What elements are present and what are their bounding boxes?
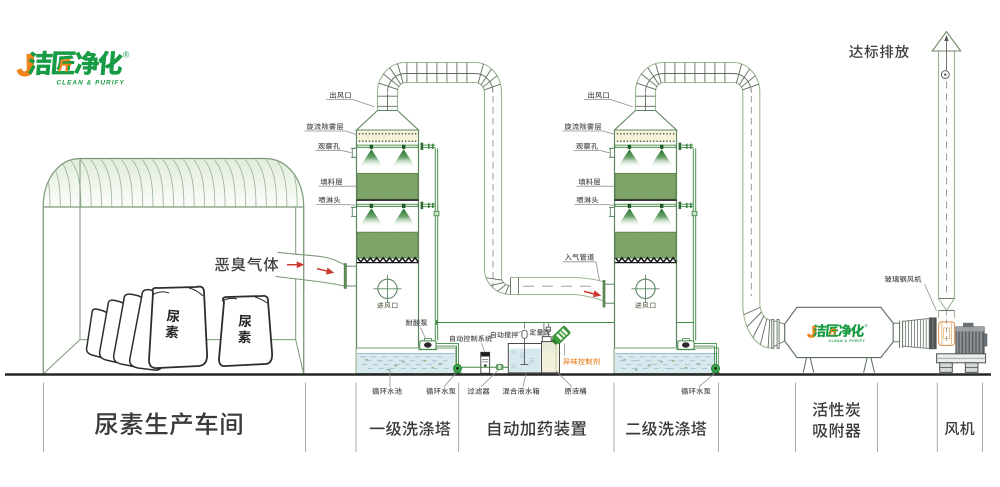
svg-text:CLEAN & PURIFY: CLEAN & PURIFY — [828, 339, 865, 343]
svg-text:CLEAN & PURIFY: CLEAN & PURIFY — [57, 79, 125, 86]
svg-text:®: ® — [123, 50, 130, 60]
